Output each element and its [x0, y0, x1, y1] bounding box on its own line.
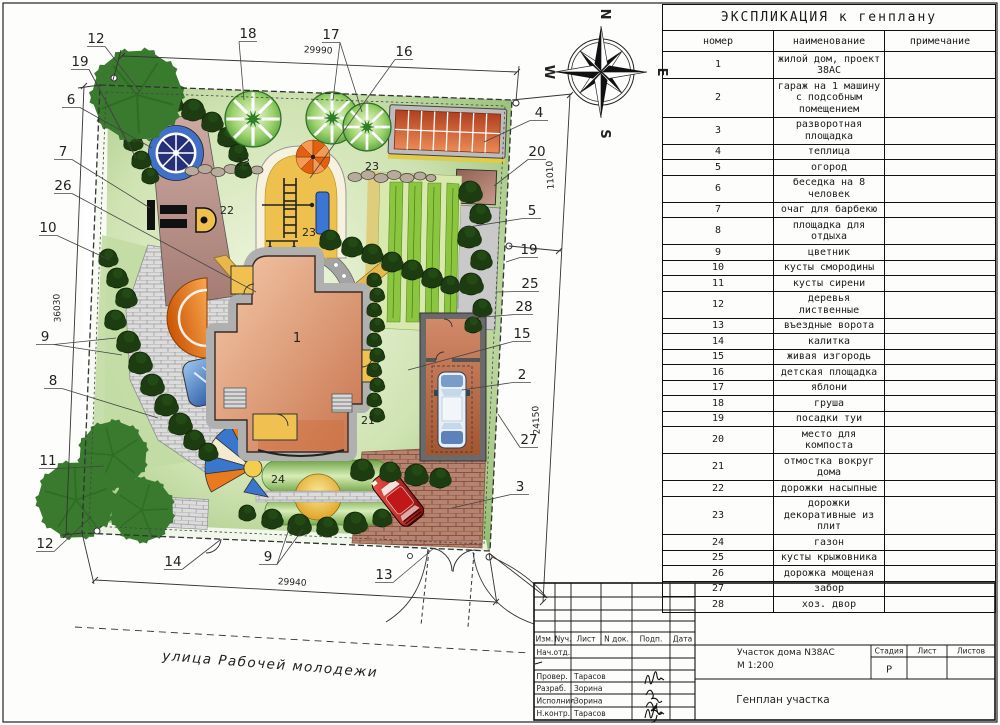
plan-callout-16: 16: [395, 44, 412, 60]
row-note: [885, 427, 996, 454]
row-number: 23: [663, 496, 774, 535]
plan-callout-19: 19: [520, 242, 537, 258]
garage: [420, 313, 486, 461]
row-number: 18: [663, 396, 774, 412]
plan-callout-22: 22: [220, 204, 234, 217]
row-note: [885, 276, 996, 292]
row-name: калитка: [774, 334, 885, 350]
explication-row: 10кусты смородины: [663, 260, 996, 276]
street-name: улица Рабочей молодежи: [161, 648, 379, 681]
row-note: [885, 365, 996, 381]
row-number: 22: [663, 481, 774, 497]
dim-left: 36030: [52, 293, 63, 322]
gates: [206, 539, 475, 627]
row-name: груша: [774, 396, 885, 412]
stamp-text: Р: [886, 665, 892, 676]
explication-row: 20место для компоста: [663, 427, 996, 454]
plan-callout-13: 13: [375, 567, 392, 583]
explication-row: 7очаг для барбекю: [663, 202, 996, 218]
row-note: [885, 202, 996, 218]
row-name: дорожка мощеная: [774, 566, 885, 582]
stamp-text: Nуч.: [555, 635, 572, 644]
row-number: 3: [663, 117, 774, 144]
row-name: хоз. двор: [774, 597, 885, 613]
plan-callout-23: 23: [236, 156, 250, 169]
stamp-text: Стадия: [875, 647, 904, 656]
row-name: жилой дом, проект 38АС: [774, 52, 885, 79]
stamp-text: Подп.: [640, 635, 663, 644]
drawing-sheet: 29990 36030 11010 24150 29940 улица Рабо…: [0, 0, 1000, 725]
explication-row: 8площадка для отдыха: [663, 218, 996, 245]
row-note: [885, 218, 996, 245]
callout-leader: [506, 258, 520, 263]
dim-bottom: 29940: [278, 577, 307, 589]
plan-callout-17: 17: [322, 27, 339, 43]
callout-leader: [182, 540, 220, 570]
row-number: 9: [663, 245, 774, 261]
explication-row: 19посадки туи: [663, 411, 996, 427]
row-name: разворотная площадка: [774, 117, 885, 144]
row-note: [885, 334, 996, 350]
row-name: газон: [774, 535, 885, 551]
plan-callout-25: 25: [521, 276, 538, 292]
plan-callout-5: 5: [528, 203, 537, 219]
explication-row: 3разворотная площадка: [663, 117, 996, 144]
row-note: [885, 291, 996, 318]
row-name: дорожки декоративные из плит: [774, 496, 885, 535]
row-note: [885, 550, 996, 566]
plan-callout-14: 14: [164, 554, 181, 570]
row-number: 5: [663, 160, 774, 176]
row-number: 4: [663, 144, 774, 160]
explication-row: 4теплица: [663, 144, 996, 160]
row-number: 11: [663, 276, 774, 292]
row-name: огород: [774, 160, 885, 176]
explication-row: 2гараж на 1 машину с подсобным помещение…: [663, 79, 996, 118]
explication-row: 23дорожки декоративные из плит: [663, 496, 996, 535]
col-header-name: наименование: [774, 31, 885, 52]
row-note: [885, 535, 996, 551]
row-note: [885, 175, 996, 202]
plan-callout-24: 24: [271, 473, 285, 486]
plan-callout-12: 12: [36, 536, 53, 552]
explication-row: 12деревья лиственные: [663, 291, 996, 318]
explication-row: 5огород: [663, 160, 996, 176]
stamp-text: Зорина: [574, 697, 603, 706]
row-name: живая изгородь: [774, 349, 885, 365]
explication-row: 11кусты сирени: [663, 276, 996, 292]
plan-callout-9: 9: [41, 329, 50, 345]
explication-row: 9цветник: [663, 245, 996, 261]
dim-right-upper: 11010: [545, 160, 556, 189]
row-number: 1: [663, 52, 774, 79]
row-note: [885, 396, 996, 412]
row-number: 27: [663, 581, 774, 597]
plan-callout-4: 4: [535, 105, 544, 121]
explication-row: 25кусты крыжовника: [663, 550, 996, 566]
row-name: въездные ворота: [774, 318, 885, 334]
stamp-text: Зорина: [574, 684, 603, 693]
callout-leader: [333, 43, 340, 101]
stamp-text: Провер.: [537, 672, 568, 681]
explication-row: 18груша: [663, 396, 996, 412]
stamp-text: Тарасов: [573, 672, 606, 681]
dim-top: 29990: [304, 45, 333, 56]
row-note: [885, 411, 996, 427]
row-note: [885, 454, 996, 481]
stamp-text: Лист: [917, 647, 937, 656]
row-note: [885, 597, 996, 613]
row-name: кусты сирени: [774, 276, 885, 292]
col-header-note: примечание: [885, 31, 996, 52]
explication-row: 13въездные ворота: [663, 318, 996, 334]
row-note: [885, 380, 996, 396]
row-number: 21: [663, 454, 774, 481]
explication-row: 15живая изгородь: [663, 349, 996, 365]
stamp-text: N док.: [604, 635, 629, 644]
dim-right-lower: 24150: [531, 405, 542, 434]
row-number: 15: [663, 349, 774, 365]
row-name: кусты смородины: [774, 260, 885, 276]
plan-callout-27: 27: [520, 432, 537, 448]
explication-row: 24газон: [663, 535, 996, 551]
plan-callout-9: 9: [264, 549, 273, 565]
row-name: место для компоста: [774, 427, 885, 454]
row-name: теплица: [774, 144, 885, 160]
explication-row: 14калитка: [663, 334, 996, 350]
stamp-text: Нач.отд.: [537, 648, 571, 657]
row-number: 8: [663, 218, 774, 245]
plan-callout-6: 6: [67, 92, 76, 108]
plan-callout-10: 10: [39, 220, 56, 236]
compass-w: W: [541, 65, 556, 79]
stamp-text: Н.контр.: [537, 709, 571, 718]
explication-row: 17яблони: [663, 380, 996, 396]
plan-callout-8: 8: [49, 373, 58, 389]
stamp-text: Тарасов: [573, 709, 606, 718]
plan-callout-1: 1: [293, 331, 301, 346]
stamp-text: Исполнил: [537, 697, 576, 706]
plan-callout-11: 11: [39, 453, 56, 469]
row-name: кусты крыжовника: [774, 550, 885, 566]
row-note: [885, 52, 996, 79]
greenhouse: [388, 105, 507, 164]
row-name: гараж на 1 машину с подсобным помещением: [774, 79, 885, 118]
row-note: [885, 79, 996, 118]
explication-row: 16детская площадка: [663, 365, 996, 381]
plan-callout-7: 7: [59, 144, 68, 160]
row-number: 12: [663, 291, 774, 318]
row-name: отмостка вокруг дома: [774, 454, 885, 481]
plan-callout-18: 18: [239, 26, 256, 42]
plan-callout-19: 19: [71, 54, 88, 70]
garaged-car: [434, 372, 470, 448]
row-number: 14: [663, 334, 774, 350]
row-note: [885, 160, 996, 176]
row-note: [885, 245, 996, 261]
row-number: 25: [663, 550, 774, 566]
row-name: деревья лиственные: [774, 291, 885, 318]
explication-table: ЭКСПЛИКАЦИЯ к генплану номер наименовани…: [662, 4, 996, 613]
row-number: 17: [663, 380, 774, 396]
street: улица Рабочей молодежи: [75, 549, 547, 681]
row-number: 16: [663, 365, 774, 381]
explication-row: 6беседка на 8 человек: [663, 175, 996, 202]
row-number: 26: [663, 566, 774, 582]
explication-row: 22дорожки насыпные: [663, 481, 996, 497]
compass-rose: N E S W: [541, 9, 669, 139]
row-name: беседка на 8 человек: [774, 175, 885, 202]
row-name: площадка для отдыха: [774, 218, 885, 245]
plan-callout-23: 23: [302, 226, 316, 239]
stamp-text: Участок дома N38АС: [737, 648, 835, 658]
row-note: [885, 318, 996, 334]
plot: [33, 48, 519, 627]
row-number: 7: [663, 202, 774, 218]
explication-row: 21отмостка вокруг дома: [663, 454, 996, 481]
row-name: дорожки насыпные: [774, 481, 885, 497]
explication-row: 28хоз. двор: [663, 597, 996, 613]
plan-callout-28: 28: [515, 299, 532, 315]
slide: [316, 192, 329, 234]
row-note: [885, 481, 996, 497]
plan-callout-26: 26: [54, 178, 71, 194]
plan-callout-2: 2: [518, 367, 527, 383]
row-number: 24: [663, 535, 774, 551]
row-note: [885, 566, 996, 582]
col-header-number: номер: [663, 31, 774, 52]
compass-n: N: [597, 9, 612, 20]
row-note: [885, 496, 996, 535]
row-number: 6: [663, 175, 774, 202]
plan-callout-21: 21: [361, 414, 375, 427]
explication-row: 1жилой дом, проект 38АС: [663, 52, 996, 79]
row-name: очаг для барбекю: [774, 202, 885, 218]
explication-title: ЭКСПЛИКАЦИЯ к генплану: [663, 5, 996, 31]
stamp-text: М 1:200: [737, 661, 774, 671]
plan-callout-3: 3: [516, 479, 525, 495]
row-name: цветник: [774, 245, 885, 261]
row-number: 10: [663, 260, 774, 276]
callout-leader: [496, 292, 521, 293]
stamp-text: Разраб.: [537, 684, 566, 693]
stamp-text: Лист: [576, 635, 596, 644]
row-number: 2: [663, 79, 774, 118]
plan-callout-12: 12: [87, 31, 104, 47]
explication-row: 27забор: [663, 581, 996, 597]
plan-callout-15: 15: [513, 326, 530, 342]
row-name: посадки туи: [774, 411, 885, 427]
stamp-text: Генплан участка: [736, 694, 829, 706]
row-note: [885, 260, 996, 276]
compass-s: S: [597, 129, 612, 138]
row-note: [885, 117, 996, 144]
stamp-text: Листов: [957, 647, 985, 656]
row-number: 20: [663, 427, 774, 454]
row-name: детская площадка: [774, 365, 885, 381]
row-note: [885, 144, 996, 160]
stamp-text: Дата: [673, 635, 692, 644]
row-name: яблони: [774, 380, 885, 396]
explication-row: 26дорожка мощеная: [663, 566, 996, 582]
row-number: 13: [663, 318, 774, 334]
callout-leader: [498, 414, 520, 448]
row-number: 19: [663, 411, 774, 427]
row-note: [885, 581, 996, 597]
row-number: 28: [663, 597, 774, 613]
row-note: [885, 349, 996, 365]
plan-callout-20: 20: [528, 144, 545, 160]
plan-callout-23: 23: [365, 160, 379, 173]
stamp-text: Изм.: [536, 635, 554, 644]
row-name: забор: [774, 581, 885, 597]
